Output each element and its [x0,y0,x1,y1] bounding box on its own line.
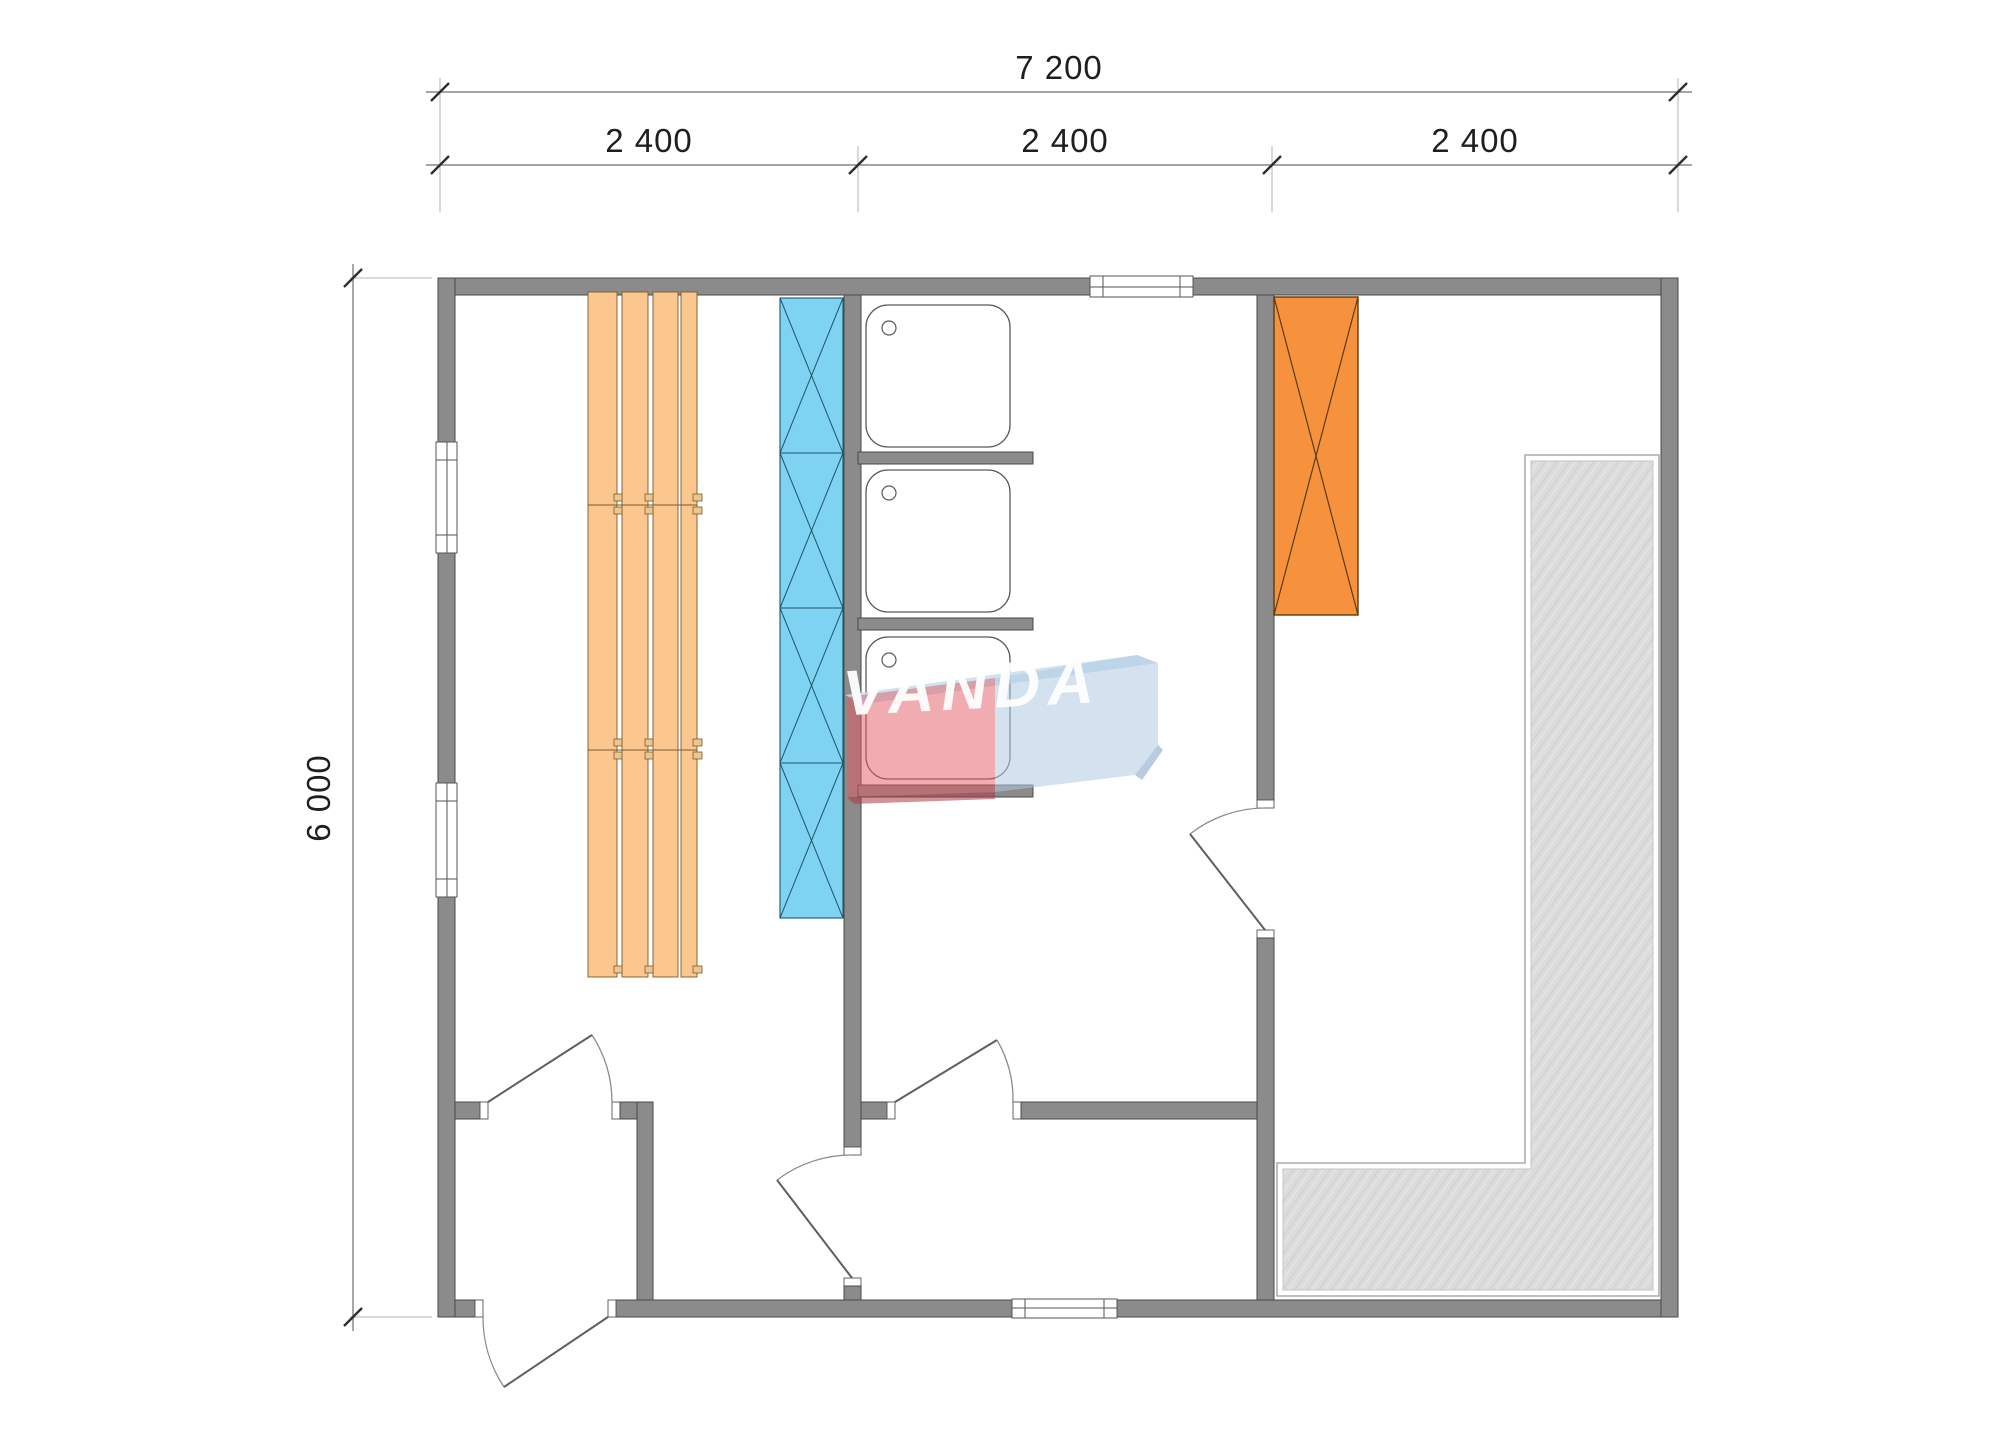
window-left-lower [436,783,457,897]
interior-wall-vertical-2 [1257,938,1274,1300]
shower-tray [866,637,1010,779]
door-swing-arc [997,1040,1013,1102]
shower-divider [858,452,1033,464]
door-jamb [844,1147,861,1155]
vestibule-interior-door [488,1035,612,1102]
bench-clip [645,739,653,746]
shower-drain-icon [882,653,896,667]
interior-wall-horizontal-left [455,1102,480,1119]
door-jamb [887,1102,895,1119]
bench-clip [645,752,653,759]
exterior-wall-top [1193,278,1678,295]
exterior-wall-right [1661,278,1678,1317]
bench-clip [614,494,622,501]
shower-tray [866,470,1010,612]
bench-clip [614,966,622,973]
bench-clip [693,966,702,973]
exterior-wall-bottom [616,1300,1012,1317]
interior-wall-vertical-2 [1257,295,1274,800]
door-jamb [475,1300,483,1317]
shower-drain-icon [882,486,896,500]
bench-clip [614,739,622,746]
exterior-entrance-door [483,1317,608,1387]
exterior-wall-left [438,897,455,1317]
shower-to-right-room-door [1190,808,1265,930]
bench-clip [693,739,702,746]
bench-board [681,292,697,977]
interior-wall-vestibule-right [637,1102,653,1300]
door-swing-arc [1190,808,1265,834]
interior-wall-vertical-1 [844,1286,861,1300]
dimension-label-segment-3: 2 400 [1431,122,1519,159]
interior-wall-horizontal-right [1021,1102,1257,1119]
bench-clip [645,507,653,514]
door-jamb [608,1300,616,1317]
dimension-label-total-height: 6 000 [300,754,337,842]
door-jamb [480,1102,488,1119]
exterior-wall-top [438,278,1090,295]
door-jamb [1013,1102,1021,1119]
dimension-label-segment-2: 2 400 [1021,122,1109,159]
shower-drain-icon [882,321,896,335]
door-swing-arc [777,1155,852,1180]
dimension-total-height: 6 000 [300,264,432,1331]
hall-to-shower-door [895,1040,1013,1102]
interior-wall-horizontal-right [861,1102,887,1119]
dimension-label-segment-1: 2 400 [605,122,693,159]
bench-clip [614,507,622,514]
exterior-wall-left [438,553,455,783]
door-jamb [612,1102,620,1119]
door-jamb [844,1278,861,1286]
bench-clip [614,752,622,759]
shower-divider [858,785,1033,797]
door-jamb [1257,930,1274,938]
bench-clip [645,966,653,973]
door-leaf [1190,834,1265,930]
door-jamb [1257,800,1274,808]
bench-board [588,292,617,977]
floor-plan-page: 7 200 2 400 2 400 2 400 6 000 [0,0,2000,1450]
shower-divider [858,618,1033,630]
window-top [1090,276,1193,297]
dimension-label-total-width: 7 200 [1015,49,1103,86]
shower-tray [866,305,1010,447]
bench-clip [693,752,702,759]
door-leaf [777,1180,852,1278]
door-leaf [895,1040,997,1102]
passage-door-left [777,1155,852,1278]
bench-clip [645,494,653,501]
window-left-upper [436,442,457,553]
door-leaf [488,1035,592,1102]
dimension-segments: 2 400 2 400 2 400 [426,122,1692,212]
door-leaf [504,1317,608,1387]
bench-clip [693,494,702,501]
door-swing-arc [483,1317,504,1387]
sauna-bench-boards [588,292,702,977]
glass-partition [780,298,843,918]
shower-stalls [858,305,1033,797]
bench-clip [693,507,702,514]
bench-board [653,292,678,977]
window-bottom [1012,1299,1117,1318]
exterior-wall-left [438,278,455,442]
exterior-wall-bottom [1117,1300,1678,1317]
interior-wall-vertical-1 [844,295,861,1147]
stove-block [1274,297,1358,615]
door-swing-arc [592,1035,612,1102]
bench-board [622,292,648,977]
floor-plan-drawing: 7 200 2 400 2 400 2 400 6 000 [0,0,2000,1450]
